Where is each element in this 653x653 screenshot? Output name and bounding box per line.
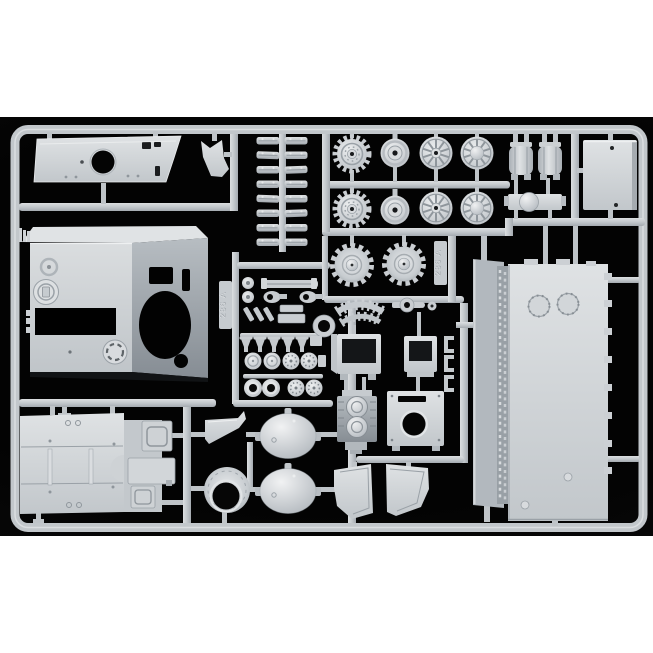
sprue-tag-1: 286 A 286 A [218,281,233,329]
part-roof-hatch-panel [583,140,637,210]
part-engine-deck [20,413,175,514]
part-engine-block [337,390,377,454]
part-wheel-set [335,132,494,226]
sprue-tag-2: 286 A 286 A [433,241,448,285]
part-superstructure-box [19,226,208,382]
part-stowage-boxes [331,334,437,380]
part-track-tooth-edge [497,266,508,504]
part-small-fittings [240,277,336,397]
sprue-tag-2-label-face: 286 A [433,250,443,277]
sprue-photo: 286 A 286 A 286 A 286 A [0,117,653,536]
part-hull-bottom-panel [508,259,612,521]
part-mudguards [334,464,429,519]
part-fuel-tanks [509,131,562,180]
white-margin-top [0,0,653,117]
part-retaining-clips [446,338,454,390]
part-boss-bracket [504,193,566,212]
part-mounting-plate [387,391,444,451]
part-fin-bracket [201,140,232,177]
part-armoured-domes [255,408,321,514]
part-collar-housing [204,467,250,513]
white-margin-bottom [0,536,653,653]
part-dished-sprockets [333,245,423,284]
photo-page: 286 A 286 A 286 A 286 A [0,0,653,653]
part-wing-bracket [205,411,246,444]
part-hull-roof-plate [34,136,181,182]
sprue-tag-1-label-face: 286 A [218,292,228,319]
